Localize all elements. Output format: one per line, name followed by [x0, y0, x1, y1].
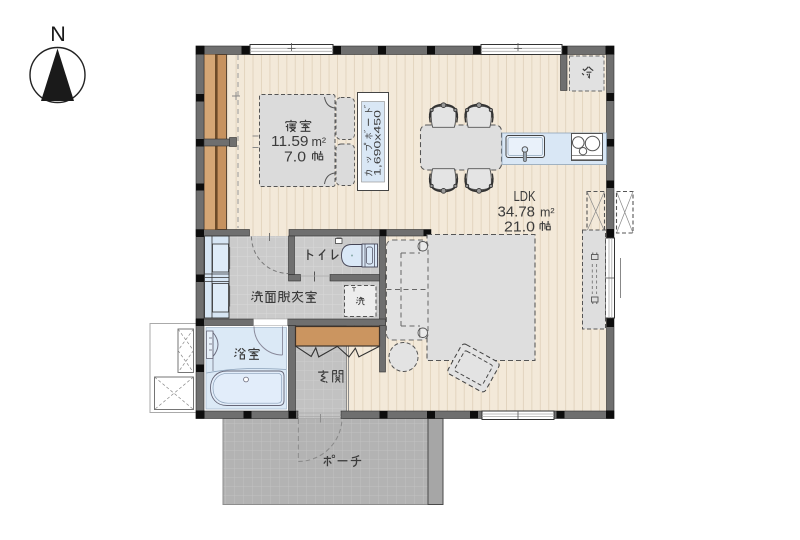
svg-text:LDK: LDK [514, 188, 536, 205]
svg-text:34.78: 34.78 [498, 205, 536, 221]
svg-text:N: N [50, 22, 66, 46]
svg-text:21.0: 21.0 [504, 220, 535, 236]
svg-text:1,690x450: 1,690x450 [373, 110, 383, 176]
svg-text:11.59: 11.59 [271, 134, 309, 150]
svg-text:7.0: 7.0 [284, 150, 306, 166]
svg-text:m²: m² [312, 135, 327, 149]
svg-text:m²: m² [540, 206, 555, 220]
